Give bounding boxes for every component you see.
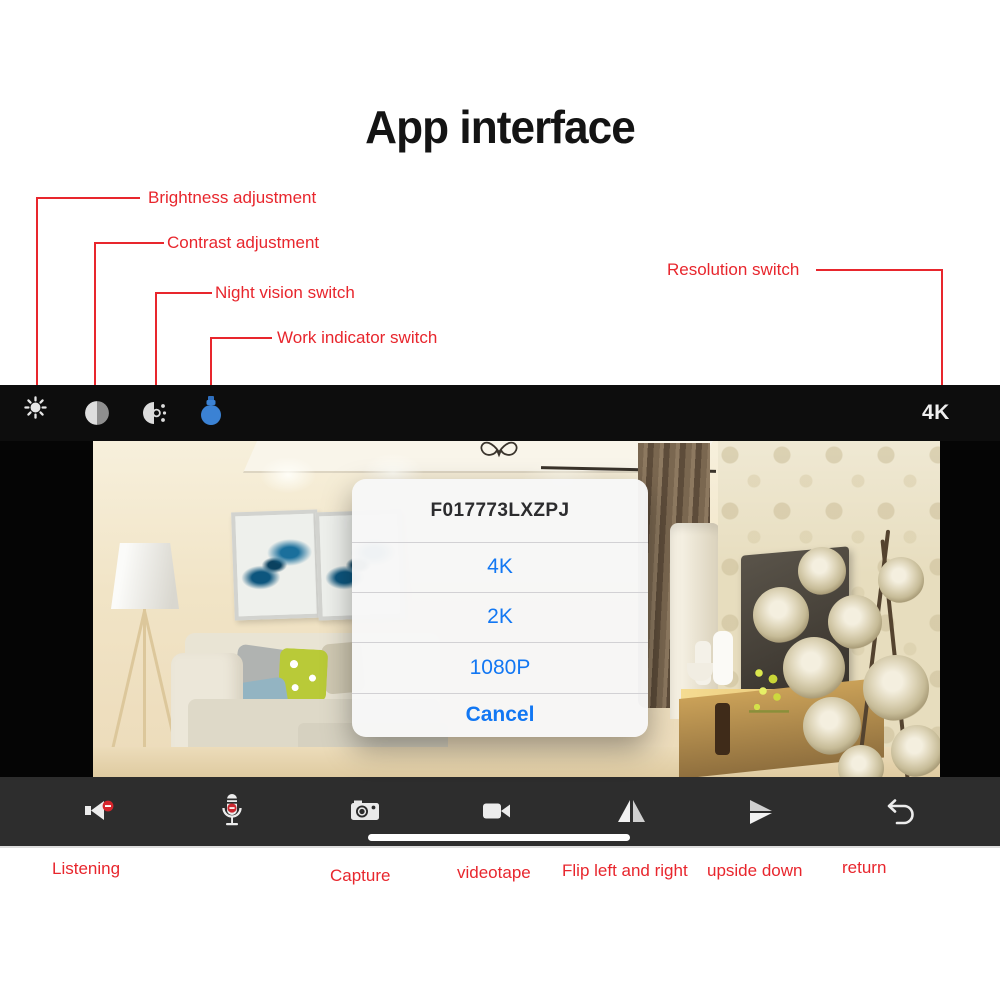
dark-bottle: [715, 703, 730, 755]
label-listening: Listening: [52, 859, 120, 879]
leader-line-resolution-h: [816, 269, 943, 271]
bottom-toolbar: [0, 777, 1000, 848]
flower: [783, 637, 845, 699]
video-progress-bar[interactable]: [368, 834, 630, 841]
flower: [798, 547, 846, 595]
picture-frame-left: [231, 510, 321, 621]
flower: [838, 745, 884, 777]
annotation-night-vision: Night vision switch: [215, 283, 355, 303]
camera-icon[interactable]: [350, 798, 380, 823]
flower: [891, 725, 940, 777]
white-vase: [713, 631, 733, 685]
dialog-cancel-button[interactable]: Cancel: [352, 693, 648, 737]
floor-lamp-leg: [143, 609, 146, 759]
brightness-icon[interactable]: [24, 396, 47, 419]
flower: [753, 587, 809, 643]
label-flip-left-right: Flip left and right: [562, 861, 688, 881]
leader-line-night-v: [155, 292, 157, 400]
camcorder-icon[interactable]: [482, 801, 512, 821]
flower: [828, 595, 882, 649]
annotation-resolution: Resolution switch: [667, 260, 799, 280]
annotation-contrast: Contrast adjustment: [167, 233, 319, 253]
label-return: return: [842, 858, 886, 878]
flip-vertical-icon[interactable]: [748, 798, 774, 826]
camera-player: 4K: [0, 385, 1000, 846]
annotation-work-indicator: Work indicator switch: [277, 328, 437, 348]
resolution-dialog: F017773LXZPJ 4K 2K 1080P Cancel: [352, 479, 648, 737]
chandelier: [475, 441, 525, 461]
leader-line-brightness-v: [36, 197, 38, 399]
microphone-icon[interactable]: [218, 793, 246, 830]
flower: [878, 557, 924, 603]
leader-line-night-h: [155, 292, 212, 294]
floor-lamp-shade: [111, 543, 179, 609]
leader-line-resolution-v: [941, 269, 943, 403]
annotation-brightness: Brightness adjustment: [148, 188, 316, 208]
leader-line-work-h: [210, 337, 272, 339]
speaker-icon[interactable]: [82, 798, 118, 824]
flip-horizontal-icon[interactable]: [617, 798, 647, 824]
leader-line-contrast-v: [94, 242, 96, 400]
page-title: App interface: [20, 100, 980, 154]
contrast-icon[interactable]: [84, 400, 110, 426]
dialog-title: F017773LXZPJ: [352, 479, 648, 542]
dialog-option-1080p[interactable]: 1080P: [352, 642, 648, 692]
abstract-art: [235, 514, 316, 617]
leader-line-brightness-h: [36, 197, 140, 199]
resolution-switch-button[interactable]: 4K: [922, 401, 950, 425]
return-icon[interactable]: [885, 798, 917, 826]
flower: [863, 655, 929, 721]
marketing-graphic: App interface Brightness adjustment Cont…: [0, 0, 1000, 1000]
label-upside-down: upside down: [707, 861, 802, 881]
dialog-option-2k[interactable]: 2K: [352, 592, 648, 642]
night-vision-icon[interactable]: [143, 400, 169, 426]
floor-lamp-leg: [109, 611, 146, 758]
work-indicator-icon[interactable]: [200, 396, 222, 428]
dialog-option-4k[interactable]: 4K: [352, 542, 648, 591]
wall-flower-art: [743, 529, 940, 777]
leader-line-contrast-h: [94, 242, 164, 244]
label-videotape: videotape: [457, 863, 531, 883]
label-capture: Capture: [330, 866, 390, 886]
top-toolbar: 4K: [0, 385, 1000, 441]
